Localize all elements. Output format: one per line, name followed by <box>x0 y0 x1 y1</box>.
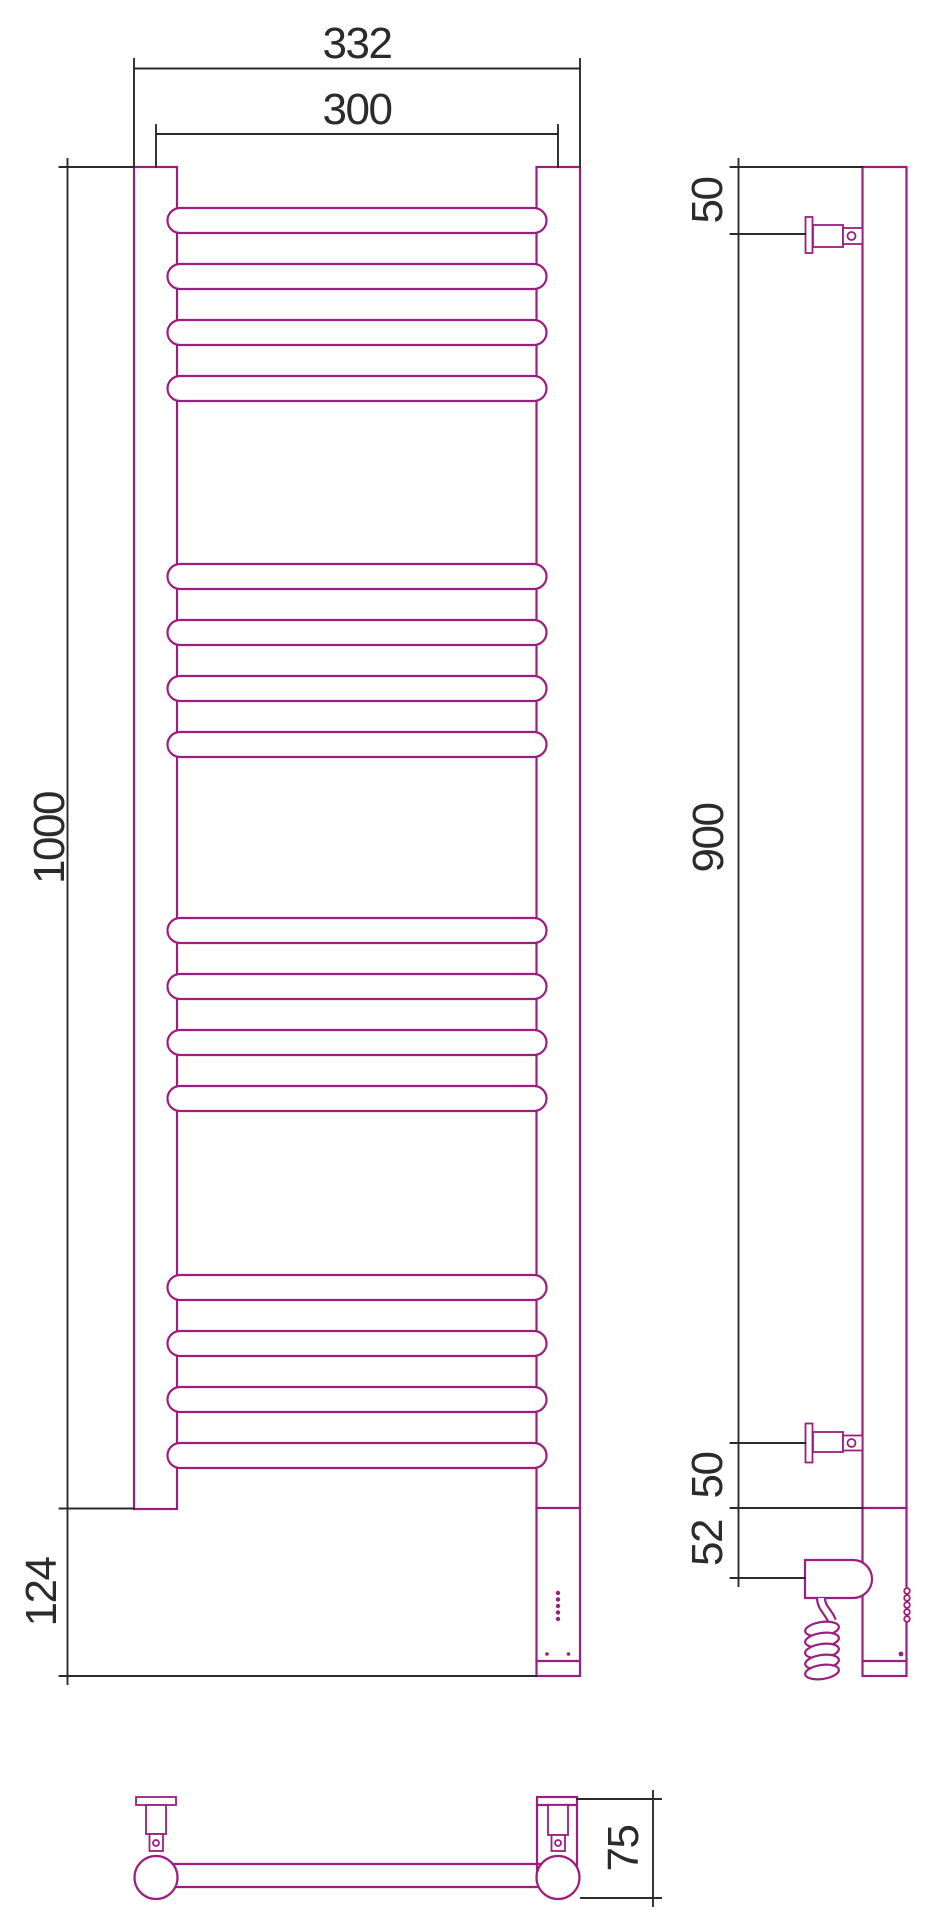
bracket-stem <box>146 1805 166 1834</box>
dim-heater-section-height: 124 <box>17 1557 537 1676</box>
coiled-cord <box>804 1620 840 1682</box>
bracket-screw <box>848 1439 856 1447</box>
drawing-canvas: 332 300 1000 124 50 900 <box>0 0 929 1920</box>
side-lower-bracket <box>806 1424 863 1463</box>
dim-label-element-offset: 52 <box>683 1520 732 1566</box>
dim-rail-centers-width: 300 <box>156 85 558 167</box>
side-upper-bracket <box>806 217 863 253</box>
bottom-right-post-section <box>537 1856 580 1899</box>
bracket-wall-flange <box>806 1424 813 1463</box>
front-rungs <box>168 208 547 1468</box>
rung <box>168 1086 547 1111</box>
bracket-wall-flange <box>806 217 813 253</box>
rung <box>168 1331 547 1356</box>
towel-rail-technical-drawing: 332 300 1000 124 50 900 <box>0 0 929 1920</box>
dim-side-offsets: 50 900 50 52 <box>683 159 863 1586</box>
dim-label-wall-depth: 75 <box>599 1826 648 1872</box>
rung <box>168 620 547 645</box>
dim-wall-depth: 75 <box>577 1791 661 1906</box>
bottom-rung-tube <box>174 1864 540 1887</box>
bottom-view <box>135 1797 580 1899</box>
rung <box>168 376 547 401</box>
dim-label-top-bracket-offset: 50 <box>683 178 732 224</box>
side-post <box>863 167 907 1676</box>
dim-body-height: 1000 <box>25 159 134 1684</box>
rung <box>168 732 547 757</box>
cap-screws <box>545 1652 570 1656</box>
rung <box>168 208 547 233</box>
bracket-screw <box>153 1840 159 1846</box>
dim-label-heater-section: 124 <box>17 1557 66 1627</box>
side-view <box>804 167 910 1681</box>
bottom-left-bracket <box>136 1797 176 1851</box>
rung <box>168 1443 547 1468</box>
bracket-screw <box>555 1840 561 1846</box>
dim-label-body-height: 1000 <box>25 792 74 884</box>
bracket-stem <box>548 1805 568 1835</box>
bracket-arm <box>813 225 843 247</box>
dim-label-bottom-bracket-offset: 50 <box>683 1453 732 1499</box>
side-cap-screw <box>899 1652 904 1657</box>
bottom-left-post-section <box>135 1856 178 1899</box>
side-heating-element <box>804 1560 910 1681</box>
rung <box>168 564 547 589</box>
dim-label-overall-width: 332 <box>323 19 392 68</box>
rung <box>168 1387 547 1412</box>
front-heater-housing <box>537 1508 581 1661</box>
heating-element-body <box>805 1560 872 1598</box>
dimensions: 332 300 1000 124 50 900 <box>17 19 863 1906</box>
dim-label-rail-centers: 300 <box>323 85 392 134</box>
indicator-leds <box>556 1591 560 1621</box>
front-view <box>134 167 580 1676</box>
bracket-arm <box>813 1432 843 1452</box>
rung <box>168 264 547 289</box>
rung <box>168 974 547 999</box>
bracket-screw <box>848 232 856 240</box>
front-left-post <box>134 167 177 1509</box>
rung <box>168 918 547 943</box>
rung <box>168 320 547 345</box>
rung <box>168 676 547 701</box>
side-knob-ridges <box>904 1588 910 1622</box>
dim-label-bracket-span: 900 <box>684 804 733 873</box>
bracket-wall-flange <box>136 1797 176 1805</box>
rung <box>168 1275 547 1300</box>
rung <box>168 1030 547 1055</box>
